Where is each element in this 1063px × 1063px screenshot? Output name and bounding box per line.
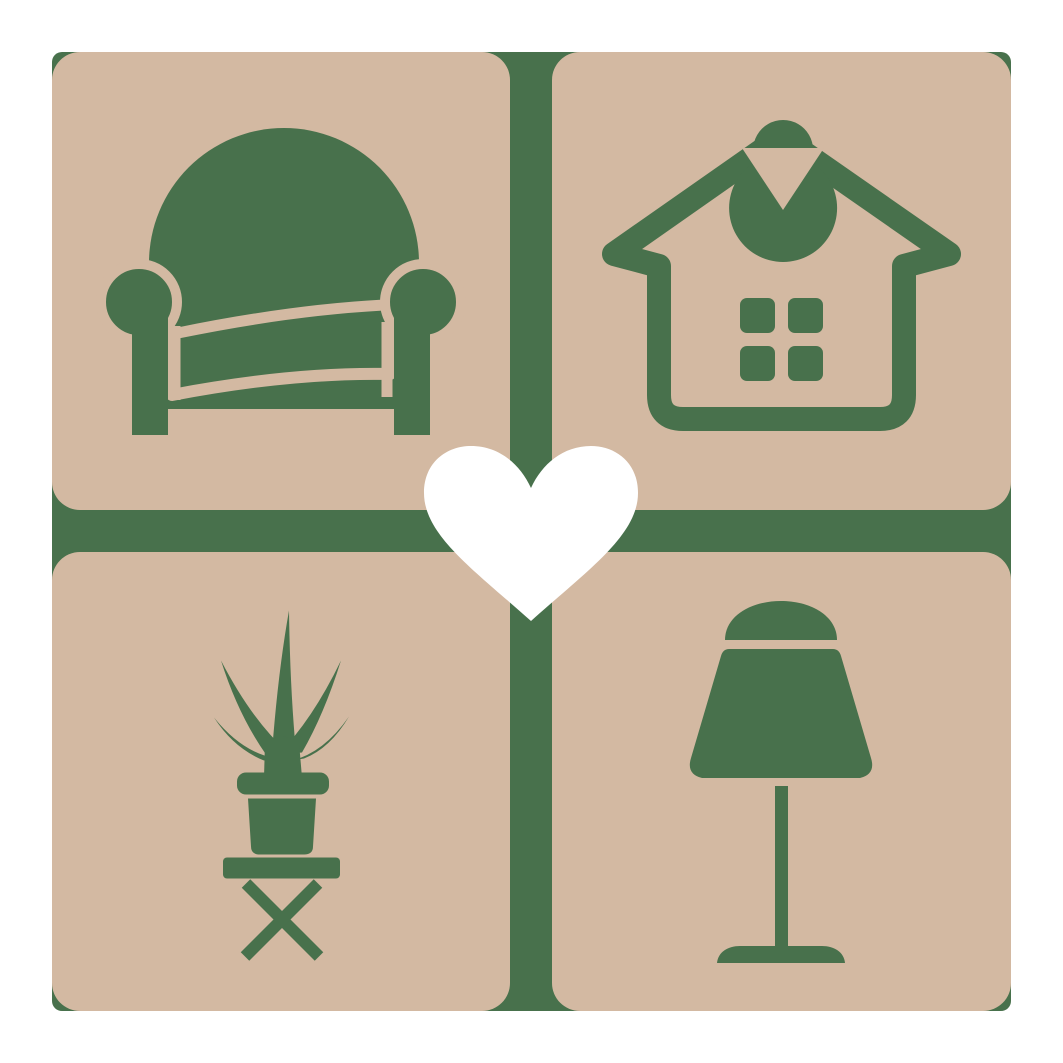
- table-lamp-icon: [552, 552, 1011, 1011]
- plant-pot-rim: [237, 773, 329, 795]
- tile-armchair: [52, 52, 510, 510]
- chair-backrest: [149, 128, 419, 325]
- lamp-shade: [690, 649, 872, 778]
- lamp-stem: [775, 786, 788, 951]
- tile-house: [552, 52, 1011, 510]
- plant-pot-body: [248, 799, 316, 855]
- house-window-pane: [740, 298, 775, 333]
- tile-lamp: [552, 552, 1011, 1011]
- logo-grid-background: [52, 52, 1011, 1011]
- potted-plant-icon: [52, 552, 510, 1011]
- lamp-base: [717, 946, 845, 963]
- chair-leg-left: [132, 304, 168, 435]
- plant-leaf-center: [272, 611, 296, 753]
- armchair-icon: [52, 52, 510, 510]
- tile-plant: [52, 552, 510, 1011]
- house-icon: [552, 52, 1011, 510]
- home-decor-logo: [0, 0, 1063, 1063]
- plant-base-cluster: [264, 737, 302, 778]
- lamp-cap: [725, 601, 837, 640]
- house-window-pane: [740, 346, 775, 381]
- stool-top: [223, 858, 340, 879]
- chair-leg-right: [394, 304, 430, 435]
- house-window-pane: [788, 298, 823, 333]
- house-window-pane: [788, 346, 823, 381]
